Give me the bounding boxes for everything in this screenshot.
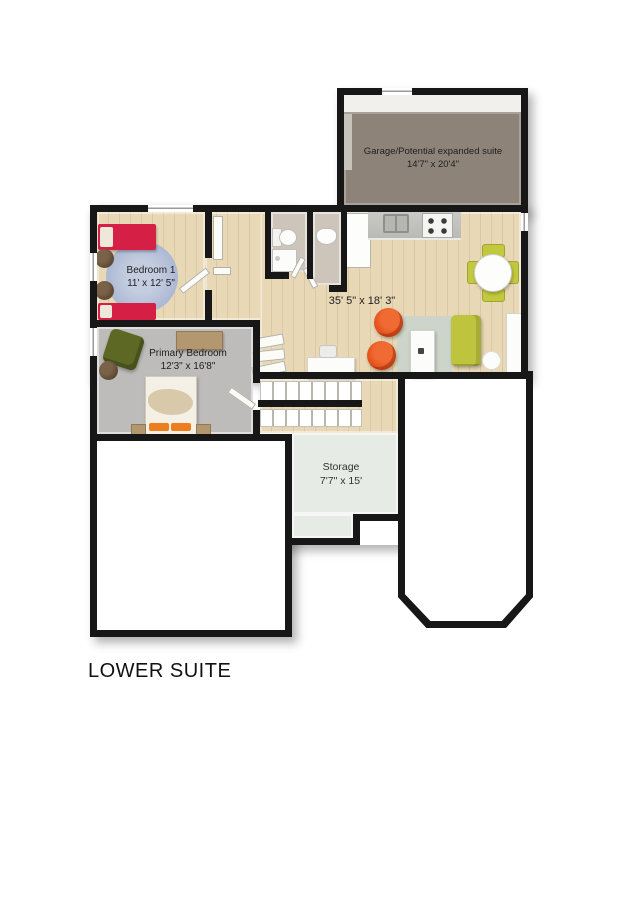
bedroom1-right-wall-b xyxy=(205,290,212,320)
bedroom1-pouf-2 xyxy=(95,281,114,300)
bathroom2-floor xyxy=(313,212,341,285)
bedroom1-bed-bottom-pillow xyxy=(100,305,112,318)
bedroom1-bed-top-pillow xyxy=(100,227,113,247)
bedroom1-pouf-1 xyxy=(95,249,114,268)
bottom-left-room-left-wall xyxy=(90,434,97,637)
left-wall-c xyxy=(90,356,97,441)
side-table xyxy=(482,351,501,370)
bedroom1-dims: 11' x 12' 5" xyxy=(127,277,176,290)
fridge xyxy=(344,213,371,268)
coffee-table-item xyxy=(418,348,424,354)
bathroom-right-wall xyxy=(341,212,347,292)
primary-left-window xyxy=(90,328,97,356)
floor-plan-canvas: Garage/Potential expanded suite 14'7" x … xyxy=(0,0,636,900)
dining-table xyxy=(474,254,512,292)
kitchen-sink xyxy=(383,214,409,233)
left-wall-a xyxy=(90,205,97,253)
stairs-mid-wall xyxy=(258,400,362,407)
storage-porch-floor xyxy=(292,514,353,538)
primary-bed-pillow-left xyxy=(149,423,169,431)
vanity-faucet xyxy=(275,256,280,261)
storage-dims: 7'7" x 15' xyxy=(320,475,362,489)
stove xyxy=(422,213,453,238)
page-title: LOWER SUITE xyxy=(88,660,231,683)
primary-pouf xyxy=(99,361,118,380)
garage-dims: 14'7" x 20'4" xyxy=(364,159,502,172)
garage-label: Garage/Potential expanded suite 14'7" x … xyxy=(364,146,502,171)
right-wall-a xyxy=(521,205,528,213)
garage-left-wall xyxy=(337,88,344,212)
bedroom-divider-wall xyxy=(90,320,260,327)
garage-apron xyxy=(344,95,521,113)
living-area-label: 35' 5" x 18' 3" xyxy=(329,294,395,309)
garage-name: Garage/Potential expanded suite xyxy=(364,146,502,159)
bottom-right-room xyxy=(405,378,526,621)
bottom-left-room-top-wall xyxy=(90,434,292,441)
bedroom1-right-wall-a xyxy=(205,212,212,258)
dining-right-window xyxy=(521,213,528,231)
garage-entry-opening xyxy=(382,88,412,95)
bathroom-mid-wall xyxy=(307,212,313,279)
bedroom1-top-window xyxy=(148,205,193,212)
stairs-treads-lower xyxy=(260,409,362,427)
garage-side-strip xyxy=(344,114,352,170)
main-top-wall-left xyxy=(90,205,148,212)
right-wall-b xyxy=(521,231,528,379)
bedroom1-left-window xyxy=(90,253,97,281)
desk-chair xyxy=(319,345,337,358)
orange-chair-2 xyxy=(367,341,396,370)
storage-bottom-wall xyxy=(353,514,405,521)
primary-bedroom-dims: 12'3" x 16'8" xyxy=(149,360,227,373)
hall-closet-shelf xyxy=(213,267,231,275)
bathroom-left-wall xyxy=(265,212,271,279)
bottom-left-room-right-wall xyxy=(285,434,292,637)
bathroom1-bottom-wall xyxy=(265,272,289,279)
toilet-bowl xyxy=(279,229,297,246)
bedroom1-label: Bedroom 1 11' x 12' 5" xyxy=(127,264,176,290)
bedroom1-name: Bedroom 1 xyxy=(127,264,176,277)
living-area-dims: 35' 5" x 18' 3" xyxy=(329,294,395,309)
stairs-treads-upper xyxy=(260,381,362,401)
garage-top-wall-right xyxy=(412,88,528,95)
pedestal-sink xyxy=(316,228,337,245)
garage-right-wall xyxy=(521,88,528,212)
living-bottom-wall xyxy=(253,372,528,379)
primary-bedroom-name: Primary Bedroom xyxy=(149,347,227,360)
orange-chair-1 xyxy=(374,308,403,337)
storage-label: Storage 7'7" x 15' xyxy=(320,461,362,489)
sofa xyxy=(451,315,481,366)
garage-top-wall-left xyxy=(337,88,382,95)
main-top-wall-right xyxy=(193,205,521,212)
primary-bed-pillow-right xyxy=(171,423,191,431)
storage-name: Storage xyxy=(320,461,362,475)
bottom-left-room xyxy=(97,441,285,630)
storage-porch-bottom-wall xyxy=(285,538,360,545)
bathroom2-bottom-wall xyxy=(329,285,347,292)
primary-bedroom-label: Primary Bedroom 12'3" x 16'8" xyxy=(149,347,227,373)
bottom-left-room-bottom-wall xyxy=(90,630,292,637)
hall-closet-door xyxy=(213,216,223,260)
